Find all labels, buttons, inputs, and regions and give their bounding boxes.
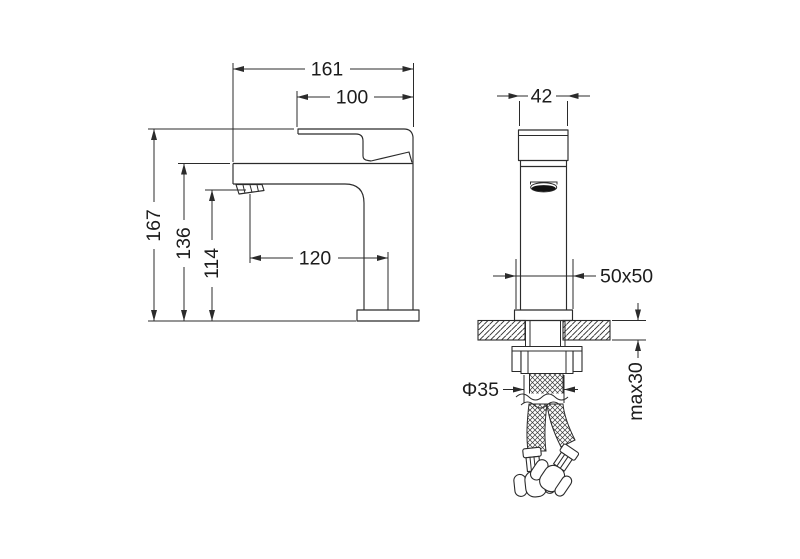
arrowhead xyxy=(233,66,244,72)
handle-top-outline xyxy=(298,129,413,310)
dim-120-label: 120 xyxy=(299,248,332,270)
extension-lines xyxy=(516,259,573,309)
outlet-dark-opening xyxy=(532,185,556,191)
horseshoe-washer xyxy=(512,347,582,352)
handle-wedge-diagonal xyxy=(371,152,412,163)
dimension-42: 42 xyxy=(497,86,590,127)
front-outlet xyxy=(531,182,558,192)
dimension-120: 120 xyxy=(250,194,388,310)
arrowhead xyxy=(505,273,516,279)
dimension-max30: max30 xyxy=(612,303,647,421)
faucet-dimension-drawing: 161 100 167 136 114 xyxy=(0,0,800,559)
dimension-136: 136 xyxy=(173,164,230,322)
dim-max30-label: max30 xyxy=(625,362,647,421)
dim-42-label: 42 xyxy=(531,86,553,108)
front-handle-block xyxy=(519,130,569,161)
arrowhead xyxy=(635,340,641,351)
arrowhead xyxy=(564,387,575,393)
countertop-hatch-left xyxy=(478,321,525,341)
dim-167-label: 167 xyxy=(143,209,165,242)
arrowhead xyxy=(403,66,414,72)
supply-hoses xyxy=(511,374,588,500)
braided-hose-right xyxy=(547,404,575,447)
countertop xyxy=(478,321,610,341)
front-joint-band xyxy=(521,161,567,167)
arrowhead xyxy=(181,310,187,321)
arrowhead xyxy=(250,255,261,261)
arrowhead xyxy=(297,94,308,100)
arrowhead xyxy=(209,190,215,201)
dim-50x50-label: 50x50 xyxy=(600,266,653,288)
arrowhead xyxy=(151,310,157,321)
arrowhead xyxy=(209,310,215,321)
braided-hose-left xyxy=(527,404,547,451)
arrowhead xyxy=(509,93,520,99)
dim-100-label: 100 xyxy=(336,87,369,109)
arrowhead xyxy=(513,387,524,393)
side-view-faucet xyxy=(233,129,419,321)
dim-136-label: 136 xyxy=(173,227,195,260)
countertop-hatch-right xyxy=(563,321,610,341)
threaded-shank xyxy=(526,321,566,347)
handle-underside-lip xyxy=(298,134,371,161)
dimension-50x50: 50x50 xyxy=(493,259,653,309)
mounting-nut-assembly xyxy=(512,347,582,374)
side-view-base xyxy=(357,310,419,321)
arrowhead xyxy=(377,255,388,261)
dimension-114: 114 xyxy=(201,190,246,321)
arrowhead xyxy=(403,94,414,100)
mounting-nut xyxy=(521,351,573,374)
washer-lip-right xyxy=(573,351,582,372)
front-base-flange xyxy=(515,310,573,321)
arrowhead xyxy=(181,164,187,175)
dimension-100: 100 xyxy=(297,87,414,128)
dim-phi35-label: Φ35 xyxy=(462,379,499,401)
arrowhead xyxy=(573,273,584,279)
dim-114-label: 114 xyxy=(201,248,223,279)
dimension-161: 161 xyxy=(233,59,414,163)
extension-lines xyxy=(612,321,646,341)
washer-lip-left xyxy=(512,351,521,372)
dim-161-label: 161 xyxy=(311,59,344,81)
front-view-faucet xyxy=(478,130,610,500)
arrowhead xyxy=(635,310,641,321)
arrowhead xyxy=(568,93,579,99)
arrowhead xyxy=(151,129,157,140)
technical-drawing-canvas: 161 100 167 136 114 xyxy=(0,0,800,559)
side-view-aerator xyxy=(236,185,264,195)
